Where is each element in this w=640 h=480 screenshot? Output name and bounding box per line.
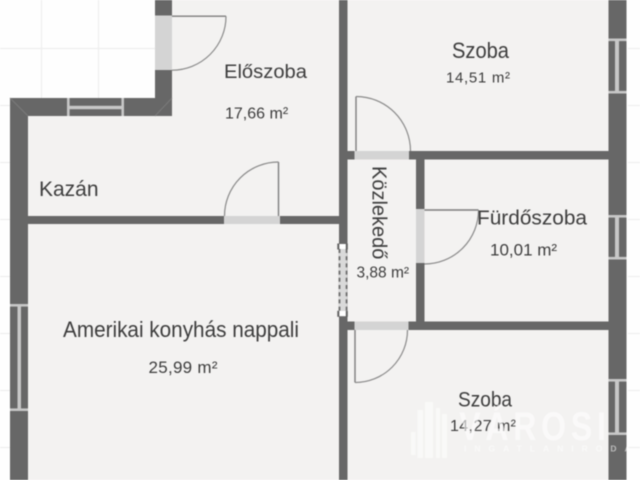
svg-text:25,99 m²: 25,99 m² [149,358,218,377]
svg-text:10,01 m²: 10,01 m² [490,241,557,260]
svg-text:Amerikai konyhás nappali: Amerikai konyhás nappali [63,317,299,342]
svg-text:17,66 m²: 17,66 m² [225,106,289,123]
svg-text:3,88 m²: 3,88 m² [357,265,410,282]
svg-text:14,51 m²: 14,51 m² [446,70,510,87]
svg-text:Előszoba: Előszoba [224,62,307,83]
svg-text:Közlekedő: Közlekedő [368,166,390,259]
svg-text:Fürdőszoba: Fürdőszoba [477,208,588,230]
svg-text:VÁROSI: VÁROSI [459,404,610,449]
svg-text:Szoba: Szoba [452,38,510,63]
svg-text:INGATLANIRODA: INGATLANIRODA [464,444,639,454]
svg-text:Kazán: Kazán [39,178,99,201]
